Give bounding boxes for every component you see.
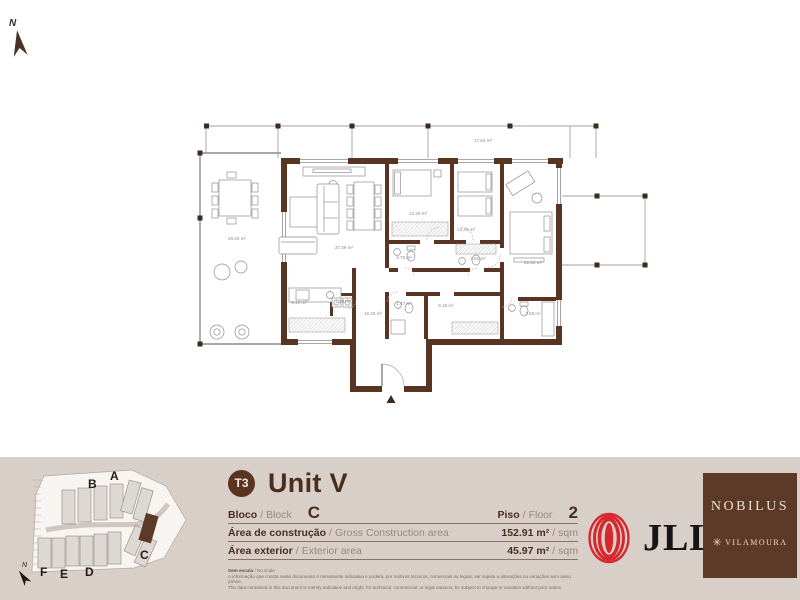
area-bedroom-2: 13.49 m² <box>457 227 476 232</box>
block-letter-a: A <box>110 469 119 483</box>
star-icon: ✳ <box>712 539 723 547</box>
area-corridor: 5.18 m² <box>438 303 454 308</box>
floor-label-en: Floor <box>529 509 553 521</box>
area-hall: 16.33 m² <box>364 311 383 316</box>
unit-info: T3 Unit V Bloco / Block C Piso / Floor 2… <box>228 468 578 590</box>
block-letter-f: F <box>40 565 47 579</box>
area-bedroom-1: 12.29 m² <box>409 211 428 216</box>
row-construction-area: Área de construção / Gross Construction … <box>228 524 578 542</box>
disclaimer-text-en: The data contained in this document is m… <box>228 585 578 591</box>
area-terrace-west: 28.34 m² <box>228 236 247 241</box>
construction-label-pt: Área de construção <box>228 527 326 539</box>
nobilus-wordmark: NOBILUS <box>711 499 789 515</box>
site-north-arrow: N <box>16 562 31 586</box>
floor-plan: 28.34 m² 17.63 m² 37.39 m² 12.29 m² 13.4… <box>185 95 695 410</box>
typology-badge: T3 <box>228 470 255 497</box>
separator: / <box>552 527 555 539</box>
separator: / <box>523 509 526 521</box>
entrance-door <box>382 364 404 386</box>
closets-hatched <box>289 222 498 334</box>
exterior-label-pt: Área exterior <box>228 545 293 557</box>
floor-label-pt: Piso <box>497 509 519 521</box>
construction-label-en: Gross Construction area <box>335 527 449 539</box>
disclaimer-scale-en: No scale <box>257 568 275 573</box>
area-bath-2: 3.82 m² <box>470 256 486 261</box>
unit-title: Unit V <box>268 468 348 499</box>
nobilus-subbrand: ✳ VILAMOURA <box>712 538 787 547</box>
jll-logo: JLL <box>584 511 716 565</box>
unit-spec-table: Bloco / Block C Piso / Floor 2 Área de c… <box>228 504 578 560</box>
block-letter-e: E <box>60 567 68 581</box>
footer-band: A B C D E F N T3 Unit V Bloco <box>0 457 800 600</box>
separator: / <box>296 545 299 557</box>
area-bath-3: 3.68 m² <box>525 311 541 316</box>
area-kitchen: 9.40 m² <box>291 300 307 305</box>
separator: / <box>260 509 263 521</box>
area-laundry: 1.70 m² <box>335 299 351 304</box>
disclaimer-scale-pt: Sem escala <box>228 568 253 573</box>
block-letter-b: B <box>88 477 97 491</box>
block-letter-c: C <box>140 548 149 562</box>
construction-unit: sqm <box>558 527 578 539</box>
nobilus-logo-box: NOBILUS ✳ VILAMOURA <box>703 473 797 578</box>
north-arrow: N <box>6 14 32 58</box>
floor-value: 2 <box>569 507 578 519</box>
exterior-label-en: Exterior area <box>302 545 362 557</box>
construction-value: 152.91 m² <box>501 527 549 539</box>
unit-header: T3 Unit V <box>228 468 578 498</box>
disclaimer: Sem escala / No scale A informação que c… <box>228 568 578 590</box>
floorplan-sheet: N <box>0 0 800 600</box>
area-terrace-north: 17.63 m² <box>474 138 493 143</box>
site-north-label: N <box>22 562 28 569</box>
jll-mark-icon <box>584 511 634 565</box>
block-label-pt: Bloco <box>228 509 257 521</box>
entrance-arrow <box>387 395 396 403</box>
area-living: 37.39 m² <box>335 245 354 250</box>
row-block-floor: Bloco / Block C Piso / Floor 2 <box>228 504 578 524</box>
block-value: C <box>308 507 320 519</box>
area-wc: 1.47 m² <box>396 301 412 306</box>
separator: / <box>329 527 332 539</box>
north-arrow-label: N <box>9 18 17 29</box>
block-letter-d: D <box>85 565 94 579</box>
area-bath-1: 2.75 m² <box>396 255 412 260</box>
separator: / <box>552 545 555 557</box>
block-label-en: Block <box>266 509 292 521</box>
site-map: A B C D E F N <box>16 466 216 594</box>
exterior-value: 45.97 m² <box>507 545 549 557</box>
compass-needle <box>10 29 27 57</box>
exterior-unit: sqm <box>558 545 578 557</box>
separator: / <box>254 568 255 573</box>
disclaimer-text-pt: A informação que consta neste documento … <box>228 574 578 585</box>
nobilus-subbrand-label: VILAMOURA <box>725 538 787 547</box>
area-master-bedroom: 22.34 m² <box>524 260 543 265</box>
row-exterior-area: Área exterior / Exterior area 45.97 m² /… <box>228 542 578 560</box>
